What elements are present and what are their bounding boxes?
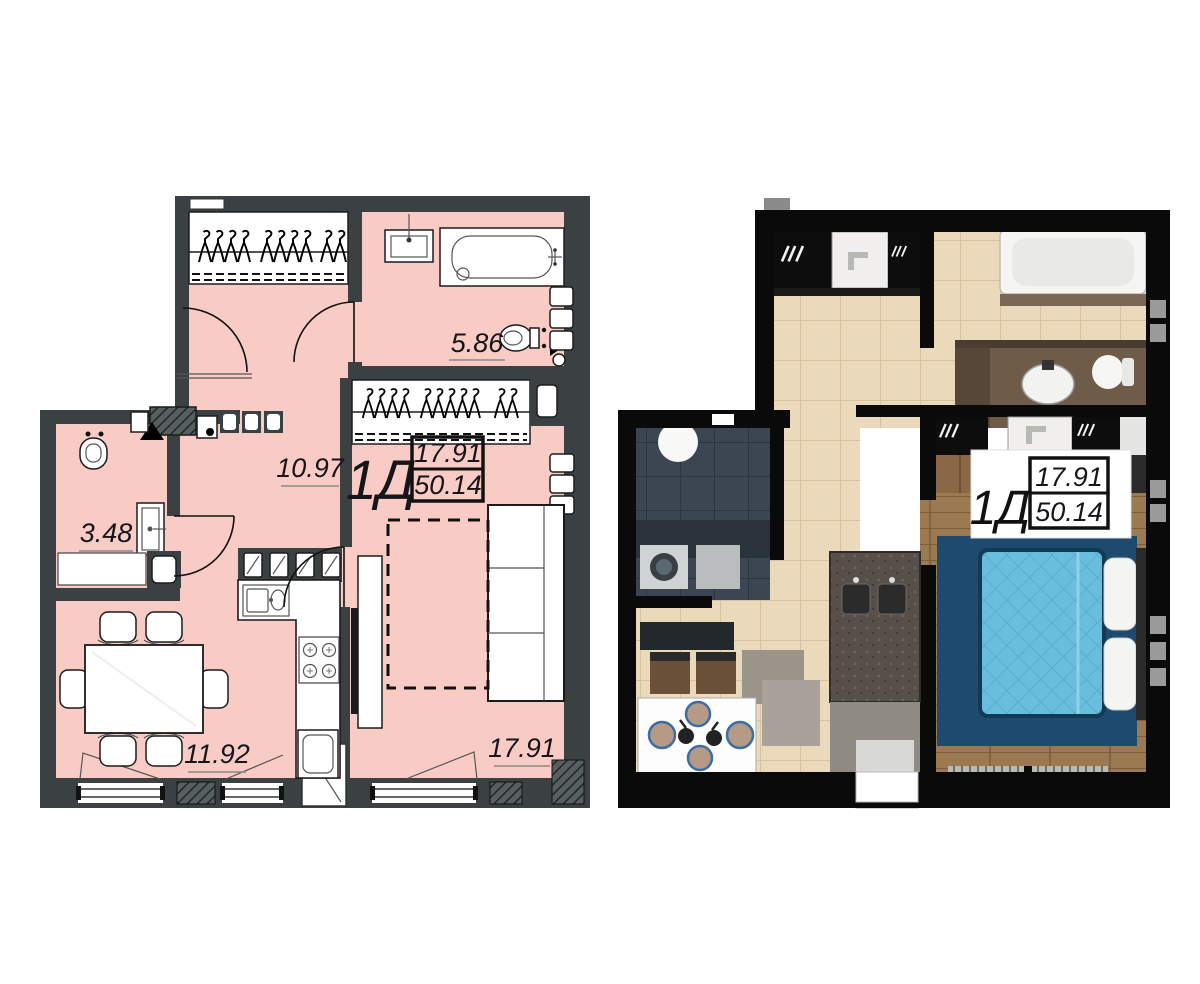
room-label-bathroom: 5.86 xyxy=(451,328,505,358)
entry-wardrobe-3d xyxy=(774,232,920,296)
sink-wc xyxy=(137,503,166,555)
unit-living-area-3d: 17.91 xyxy=(1035,462,1103,492)
unit-type-text-3d: 1Д xyxy=(970,482,1031,535)
washer-3d xyxy=(640,545,688,589)
sofa xyxy=(488,505,564,701)
wc-right-wall xyxy=(770,428,784,560)
floor-plan-3d: 1Д 17.91 50.14 xyxy=(618,198,1170,808)
dining-chair xyxy=(144,733,184,766)
bedroom-left-wall xyxy=(920,417,936,500)
unit-label-3d: 1Д 17.91 50.14 xyxy=(970,450,1131,538)
plate xyxy=(688,746,712,770)
dining-chair xyxy=(144,612,184,645)
chair-3d xyxy=(696,656,736,694)
toilet-3d xyxy=(1092,355,1134,389)
unit-label-2d: 1Д 17.91 50.14 xyxy=(346,437,483,511)
chimney-block xyxy=(764,198,790,212)
pier-hatched-right xyxy=(490,782,522,804)
wardrobe-hall xyxy=(189,212,348,284)
chair-3d xyxy=(650,656,690,694)
fridge xyxy=(298,730,338,778)
kitchen-sink-basin xyxy=(878,584,906,614)
wc-bottom-wall xyxy=(636,596,712,608)
unit-type-text: 1Д xyxy=(346,448,417,511)
kitchen-upper-cabinets xyxy=(238,548,342,582)
wc-shelf xyxy=(58,553,146,585)
room-label-wc: 3.48 xyxy=(80,518,133,548)
top-wall-window xyxy=(190,199,224,209)
room-label-living: 17.91 xyxy=(488,733,556,763)
plate xyxy=(727,722,753,748)
floor-plan-sheet: 5.86 10.97 xyxy=(0,0,1200,984)
unit-living-area: 17.91 xyxy=(414,438,482,468)
room-label-dining: 11.92 xyxy=(184,739,250,769)
tv-panel xyxy=(351,608,358,714)
kitchen-counter-3d xyxy=(830,552,920,702)
plate xyxy=(649,722,675,748)
unit-total-area: 50.14 xyxy=(414,470,482,500)
bedroom-left-wall xyxy=(920,565,936,772)
floor-plan-2d: 5.86 10.97 xyxy=(40,196,590,808)
bath-divider-wall xyxy=(920,230,934,330)
toilet-bathroom xyxy=(500,325,546,351)
console-3d xyxy=(640,622,734,650)
kitchen-sink-basin xyxy=(842,584,870,614)
bathtub xyxy=(440,228,564,286)
meter-boxes xyxy=(220,411,283,433)
headboard xyxy=(1136,548,1146,720)
room-label-hallway: 10.97 xyxy=(276,453,345,483)
shaft-block-living xyxy=(530,378,564,426)
floor-plans-svg: 5.86 10.97 xyxy=(0,0,1200,984)
washing-machine xyxy=(147,551,181,588)
pillow xyxy=(1104,558,1136,630)
pillow xyxy=(1104,638,1136,710)
wardrobe-living xyxy=(352,380,530,444)
corner-hatched-block xyxy=(552,760,584,804)
bathtub-3d xyxy=(1000,230,1146,306)
unit-total-area-3d: 50.14 xyxy=(1035,497,1103,527)
tv-cabinet xyxy=(358,556,382,728)
dining-chair xyxy=(98,733,138,766)
dining-table-3d xyxy=(638,698,756,774)
stove xyxy=(299,637,339,683)
pier-hatched-left xyxy=(177,782,215,804)
dining-chair xyxy=(98,612,138,645)
plate xyxy=(686,702,710,726)
